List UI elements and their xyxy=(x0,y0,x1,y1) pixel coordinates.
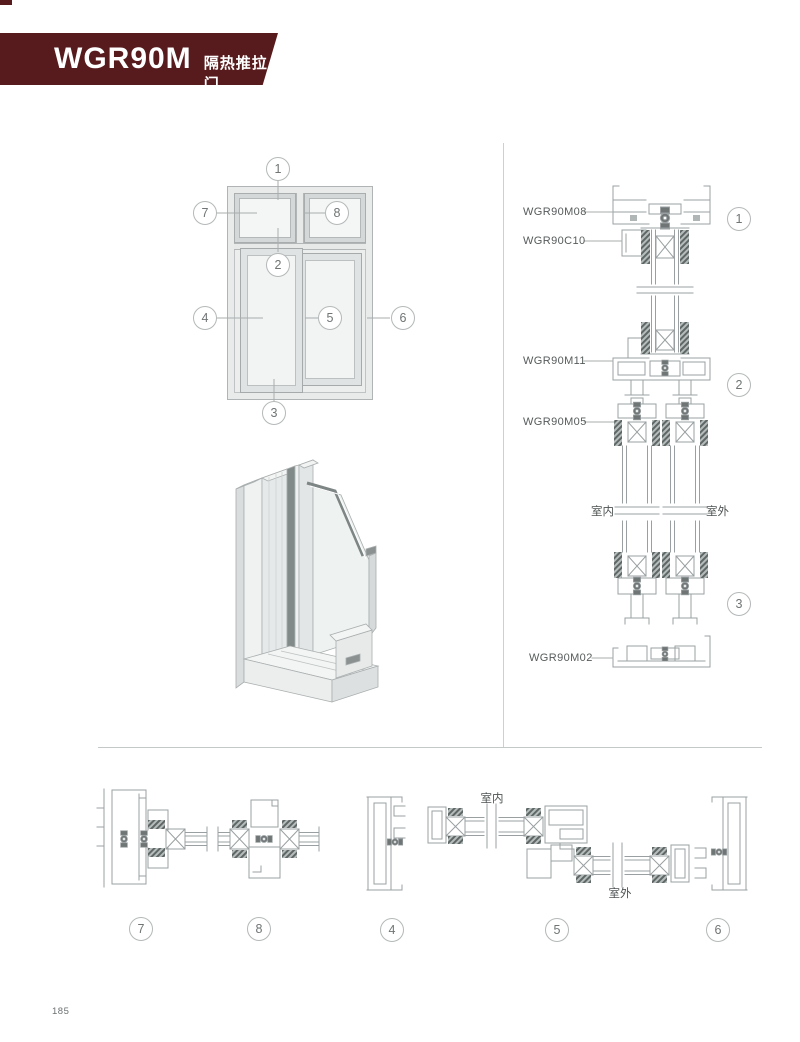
outdoor-label-vertical: 室外 xyxy=(706,503,729,519)
callout-section-4: 4 xyxy=(380,918,404,942)
callout-section-1: 1 xyxy=(727,207,751,231)
callout-elevation-4: 4 xyxy=(193,306,217,330)
callout-section-7: 7 xyxy=(129,917,153,941)
technical-drawings xyxy=(0,0,800,1042)
callout-elevation-3: 3 xyxy=(262,401,286,425)
page-number: 185 xyxy=(52,1006,69,1017)
callout-section-2: 2 xyxy=(727,373,751,397)
callout-elevation-2: 2 xyxy=(266,253,290,277)
callout-section-5: 5 xyxy=(545,918,569,942)
horizontal-divider xyxy=(98,747,762,748)
vertical-section-drawing xyxy=(584,186,710,667)
indoor-label-horizontal: 室内 xyxy=(477,790,507,806)
isometric-3d-profile xyxy=(236,460,378,702)
callout-elevation-5: 5 xyxy=(318,306,342,330)
callout-section-6: 6 xyxy=(706,918,730,942)
indoor-label-vertical: 室内 xyxy=(576,503,614,519)
callout-elevation-7: 7 xyxy=(193,201,217,225)
profile-label-wgr90c10: WGR90C10 xyxy=(523,235,586,247)
callout-elevation-6: 6 xyxy=(391,306,415,330)
outdoor-label-horizontal: 室外 xyxy=(605,885,635,901)
callout-elevation-8: 8 xyxy=(325,201,349,225)
profile-label-wgr90m11: WGR90M11 xyxy=(523,355,586,367)
profile-label-wgr90m08: WGR90M08 xyxy=(523,206,587,218)
callout-elevation-1: 1 xyxy=(266,157,290,181)
horizontal-section-drawing xyxy=(97,789,747,890)
callout-section-3: 3 xyxy=(727,592,751,616)
callout-section-8: 8 xyxy=(247,917,271,941)
catalog-page: WGR90M 隔热推拉门 xyxy=(0,0,800,1042)
elevation-leader-lines xyxy=(213,177,390,401)
profile-label-wgr90m02: WGR90M02 xyxy=(529,652,593,664)
profile-label-wgr90m05: WGR90M05 xyxy=(523,416,587,428)
vertical-divider xyxy=(503,143,504,748)
